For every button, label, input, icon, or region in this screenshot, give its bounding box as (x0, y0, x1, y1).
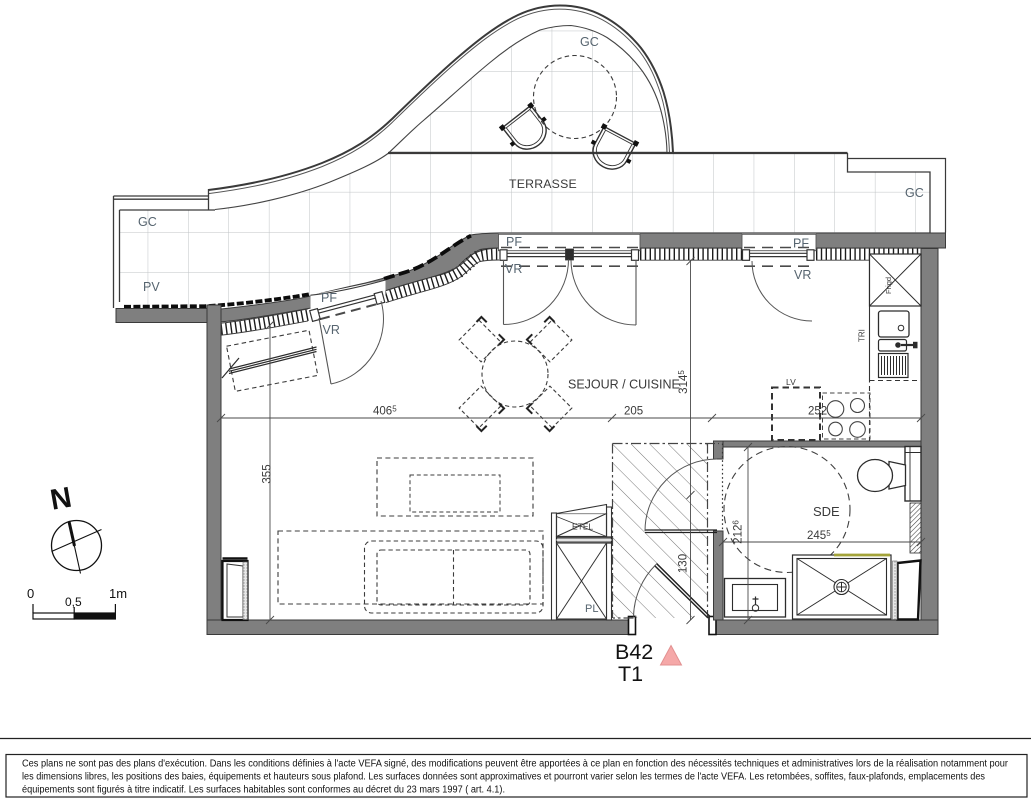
svg-text:355: 355 (262, 464, 274, 483)
svg-text:TERRASSE: TERRASSE (509, 177, 577, 191)
svg-text:VR: VR (794, 268, 811, 282)
svg-text:GC: GC (905, 186, 924, 200)
svg-text:0: 0 (27, 586, 34, 601)
svg-text:TRI: TRI (858, 329, 867, 342)
svg-text:GC: GC (138, 215, 157, 229)
svg-text:PF: PF (321, 291, 337, 305)
svg-text:LV: LV (786, 377, 796, 387)
svg-text:252: 252 (808, 406, 827, 418)
svg-text:PF: PF (793, 237, 809, 251)
svg-text:GC: GC (580, 35, 599, 49)
svg-text:les dimensions libres, les pos: les dimensions libres, les positions des… (22, 772, 985, 783)
svg-text:SDE: SDE (813, 504, 840, 519)
svg-text:T1: T1 (618, 662, 643, 686)
svg-text:équipements sont figurés à tit: équipements sont figurés à titre indicat… (22, 785, 505, 796)
svg-text:VR: VR (323, 323, 340, 337)
svg-text:SEJOUR / CUISINE: SEJOUR / CUISINE (568, 378, 680, 392)
svg-text:205: 205 (624, 406, 643, 418)
svg-text:ETEL: ETEL (572, 522, 594, 532)
svg-text:1m: 1m (109, 586, 127, 601)
svg-text:VR: VR (505, 262, 522, 276)
svg-text:PV: PV (143, 280, 160, 294)
svg-text:Ces plans ne sont pas des plan: Ces plans ne sont pas des plans d'exécut… (22, 759, 1009, 770)
svg-text:Frigd: Frigd (884, 277, 893, 294)
svg-text:PF: PF (506, 235, 522, 249)
svg-text:PL: PL (585, 603, 598, 615)
svg-text:0,5: 0,5 (65, 595, 82, 609)
svg-text:130: 130 (678, 554, 690, 573)
svg-text:B42: B42 (615, 640, 653, 664)
